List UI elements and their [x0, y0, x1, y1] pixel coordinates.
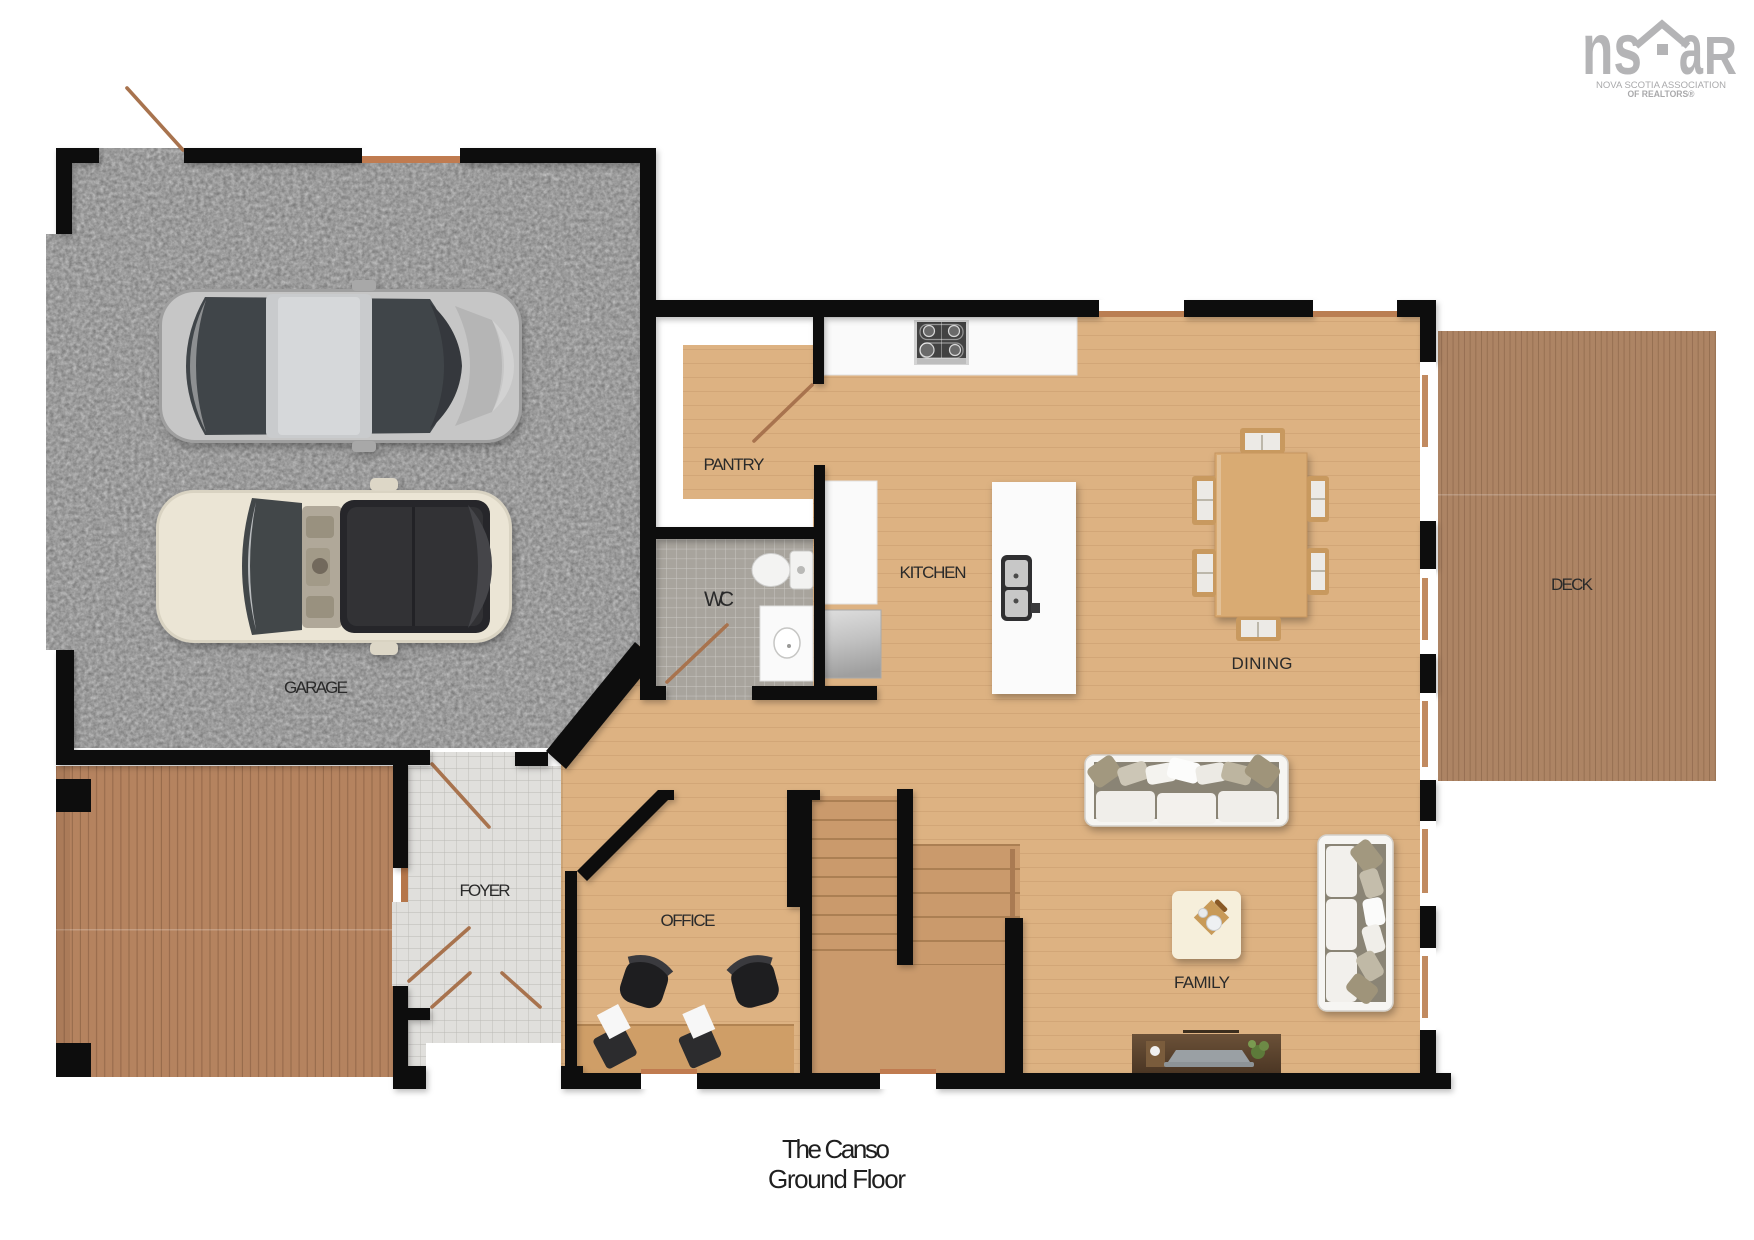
svg-text:Ground Floor: Ground Floor [768, 1164, 906, 1194]
svg-text:WC: WC [704, 588, 734, 611]
svg-text:GARAGE: GARAGE [284, 678, 348, 697]
svg-text:The Canso: The Canso [782, 1134, 890, 1164]
svg-text:FOYER: FOYER [460, 881, 511, 900]
svg-text:FAMILY: FAMILY [1174, 973, 1230, 992]
svg-text:OF REALTORS®: OF REALTORS® [1628, 89, 1695, 99]
svg-text:ns: ns [1582, 10, 1642, 90]
svg-text:a: a [1679, 10, 1704, 90]
svg-text:DINING: DINING [1232, 654, 1293, 673]
svg-text:KITCHEN: KITCHEN [900, 563, 967, 582]
svg-text:OFFICE: OFFICE [661, 911, 716, 930]
svg-text:DECK: DECK [1551, 575, 1594, 594]
svg-text:R: R [1704, 26, 1737, 86]
svg-text:PANTRY: PANTRY [704, 455, 765, 474]
